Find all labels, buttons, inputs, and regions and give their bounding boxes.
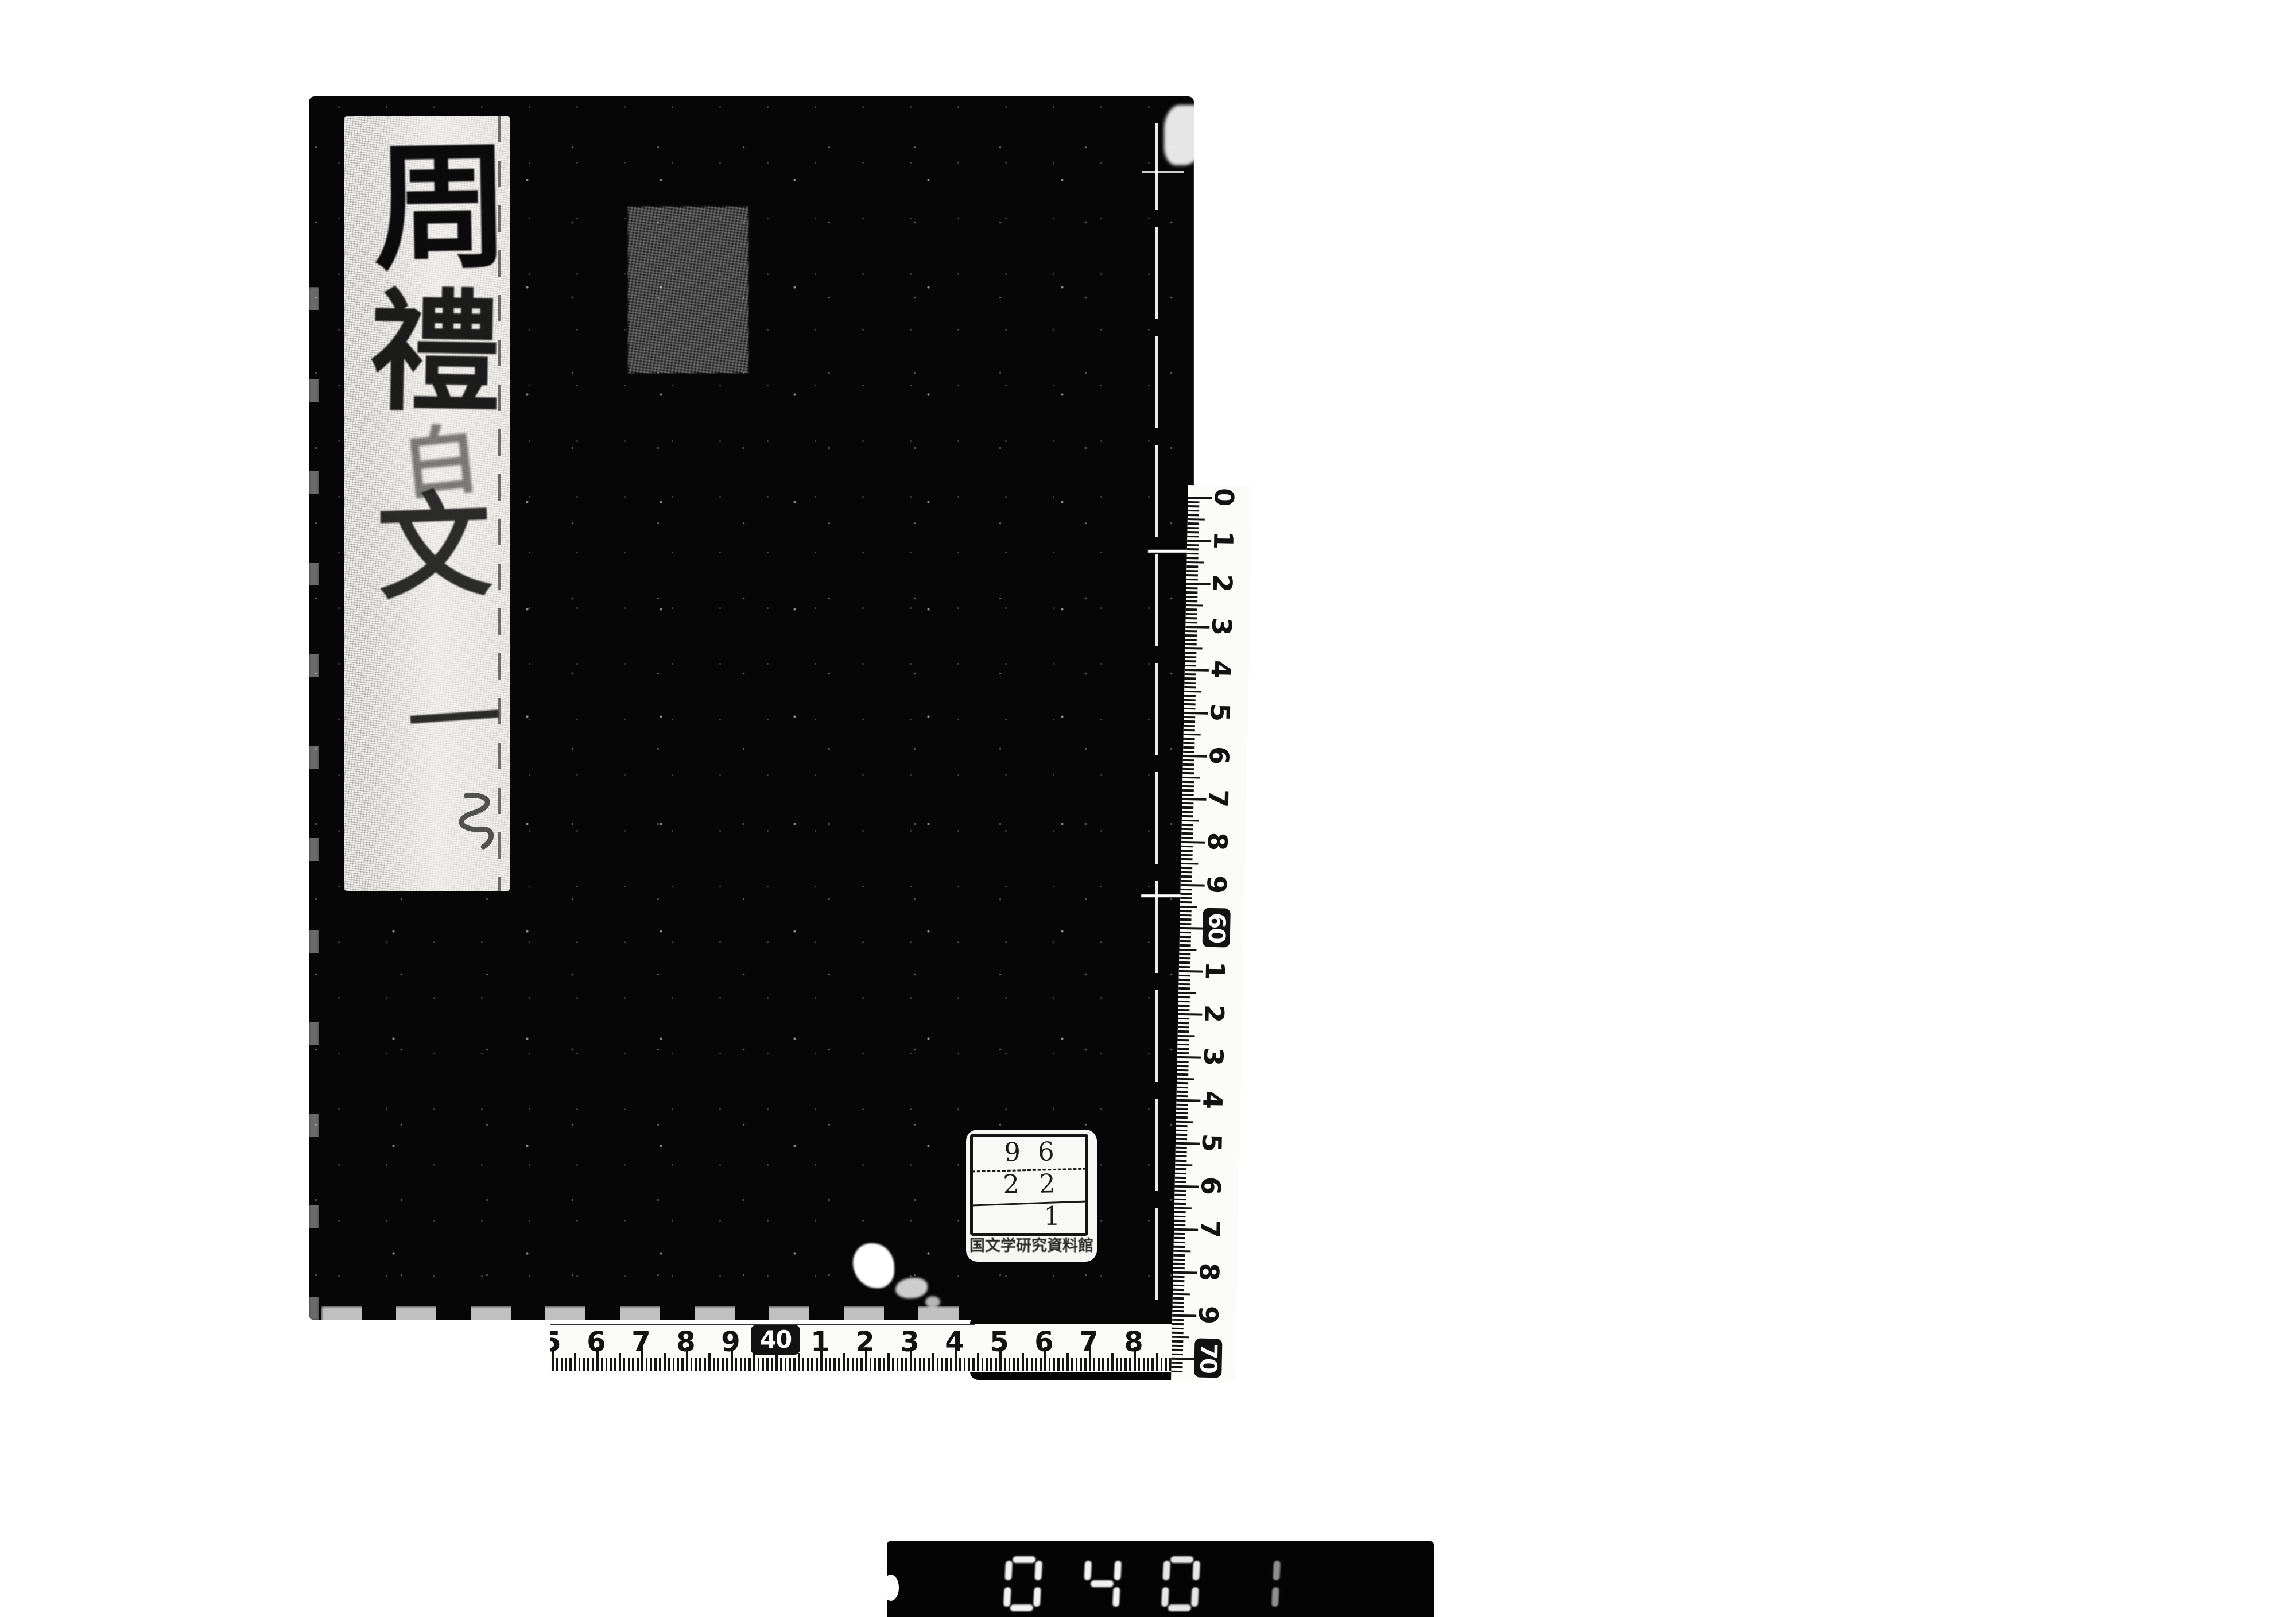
ruler-tick [1172,1306,1184,1308]
ruler-tick [968,1358,970,1371]
ruler-tick [1185,664,1196,666]
ruler-tick [1185,630,1197,632]
ruler-tick [990,1358,992,1371]
ruler-tick [1188,518,1205,520]
ruler-tick [941,1358,944,1371]
ruler-tick [592,1358,594,1371]
ruler-tick [1179,965,1190,968]
ruler-tick [1175,1177,1186,1179]
ruler-tick [587,1358,589,1371]
ruler-tick [1186,578,1198,580]
ruler-tick [1181,879,1192,882]
ruler-number: 8 [1204,827,1231,856]
ruler-number: 7 [1197,1215,1224,1244]
ruler-tick [1040,1358,1042,1371]
ruler-tick [1173,1258,1185,1261]
ruler-tick [1172,1336,1189,1338]
ruler-tick [726,1358,728,1371]
ruler-tick [1186,612,1197,615]
ruler-tick [632,1358,634,1371]
ruler-tick [1173,1254,1185,1257]
ruler-tick [1182,793,1194,796]
stamp-caption: 国文学研究資料館 [966,1233,1097,1255]
ruler-tick [1177,1039,1189,1041]
counter-digit-segment [1162,1561,1170,1580]
counter-digit-segment [1091,1580,1114,1587]
ruler-tick [744,1358,746,1371]
ruler-tick [1184,686,1196,688]
ruler-tick [1184,707,1195,709]
ruler-tick [1177,1048,1189,1050]
title-character-2: 禮 [369,286,502,419]
ruler-tick [1165,1358,1168,1371]
stamp-row-1: 96 [973,1135,1086,1168]
ruler-number: 6 [580,1326,612,1358]
ruler-tick [1173,1275,1184,1278]
ruler-tick [1179,953,1190,955]
ruler-number: 8 [1118,1326,1150,1358]
ruler-tick [883,1358,885,1371]
ruler-tick [1185,634,1197,637]
ruler-tick [1174,1203,1186,1205]
counter-digit-segment [1003,1587,1011,1607]
counter-notch [883,1575,899,1601]
ruler-tick [1180,936,1191,938]
alignment-mark-corner [1142,171,1184,173]
ruler-tick [1187,535,1199,537]
ruler-tick [838,1358,840,1371]
counter-digit-segment [1084,1561,1092,1580]
ruler-tick [1180,897,1192,899]
ruler-tick [1182,789,1194,792]
ruler-tick [1186,608,1197,611]
ruler-tick [1178,1000,1190,1002]
ruler-tick [1185,652,1196,654]
ruler-tick [1181,832,1193,835]
ruler-tick [1161,1358,1163,1371]
ruler-tick [1156,1353,1158,1371]
ruler-tick [1177,1095,1188,1097]
ruler-tick [1180,901,1192,903]
ruler-tick [1173,1250,1190,1252]
ruler-tick [1172,1358,1196,1360]
ruler-tick [1173,1267,1185,1269]
ruler-tick [789,1358,791,1371]
ruler-tick [1174,1189,1186,1192]
ruler-tick [677,1358,679,1371]
ruler-tick [619,1353,621,1371]
ruler-tick [1181,867,1192,869]
library-stamp: 96 22 1 国文学研究資料館 [966,1130,1097,1262]
ruler-tick [1182,781,1194,783]
ruler-tick [1182,806,1193,809]
ruler-tick [1184,720,1195,723]
volume-mark: 一 [403,669,506,772]
cover-wear-corner-topleft [628,207,748,373]
ruler-tick [1182,785,1194,787]
ruler-tick [1120,1358,1123,1371]
ruler-tick [1173,1284,1184,1286]
ruler-tick [1184,703,1196,705]
ruler-tick [1178,1009,1189,1011]
ruler-tick [1176,1134,1187,1136]
ruler-number: 60 [1203,908,1231,948]
ruler-tick [1178,996,1190,998]
ruler-tick [1176,1129,1187,1131]
ruler-tick [713,1358,715,1371]
ruler-tick [1183,738,1194,740]
counter-digit-segment [1004,1561,1013,1580]
ruler-tick [1180,893,1192,895]
counter-digit [1161,1556,1200,1611]
ruler-tick [1172,1340,1183,1343]
ruler-tick [1176,1120,1193,1123]
ruler-tick [1174,1220,1185,1222]
counter-digit-segment [1273,1561,1281,1580]
ruler-tick [664,1353,666,1371]
ruler-tick [1188,505,1199,507]
counter-digit-segment [1034,1561,1042,1580]
ruler-tick [1178,979,1190,981]
ruler-tick [1173,1246,1185,1248]
ruler-number: 40 [751,1325,800,1355]
ruler-tick [1185,677,1196,680]
ruler-tick [1185,621,1197,623]
ruler-number: 5 [1207,698,1234,727]
counter-digit-segment [1114,1561,1122,1580]
ruler-tick [1176,1125,1188,1127]
ruler-tick [1175,1168,1186,1170]
ruler-tick [1186,587,1198,589]
ruler-tick [1177,1052,1189,1054]
stamp-table: 96 22 1 [970,1134,1088,1236]
ruler-tick [887,1353,890,1371]
ruler-tick [1173,1297,1184,1300]
ruler-number: 8 [1196,1258,1223,1287]
ruler-tick [1176,1146,1187,1149]
ruler-number: 1 [1201,956,1228,986]
ruler-tick [668,1358,670,1371]
ruler-tick [1181,862,1198,864]
ruler-tick [1151,1358,1154,1371]
counter-digit-segment [1168,1604,1191,1611]
ruler-tick [982,1358,984,1371]
ruler-tick [1187,557,1199,559]
ruler-tick [1053,1358,1056,1371]
ruler-tick [1187,552,1199,554]
ruler-tick [807,1358,809,1371]
ruler-tick [1084,1358,1087,1371]
ruler-tick [1172,1349,1183,1351]
ruler-tick [1176,1151,1187,1153]
ruler-tick [1182,824,1193,826]
ruler-tick [945,1358,948,1371]
ruler-tick [1175,1172,1186,1174]
ruler-tick [1184,695,1196,697]
ruler-number: 3 [1200,1042,1227,1072]
ruler-tick [1179,974,1190,976]
ruler-tick [1172,1344,1183,1347]
ruler-tick [1181,828,1193,830]
ruler-tick [681,1358,684,1371]
ruler-tick [1179,948,1196,951]
ruler-tick [1184,681,1196,684]
counter-digit-segment [1161,1587,1169,1607]
ruler-tick [1031,1358,1033,1371]
ruler-tick [623,1358,626,1371]
ruler-tick [1185,656,1196,658]
ruler-tick [1180,922,1191,925]
counter-digit-segment [1271,1587,1279,1607]
ruler-tick [847,1358,850,1371]
ruler-tick [1188,509,1199,511]
ruler-tick [695,1358,697,1371]
ruler-tick [740,1358,742,1371]
ruler-tick [1178,1005,1190,1007]
counter-digit-segment [1170,1556,1194,1563]
ruler-tick [1178,1030,1189,1033]
ruler-tick [825,1358,827,1371]
ruler-tick [1182,776,1200,778]
ruler-tick [1172,1327,1184,1329]
ruler-tick [892,1358,894,1371]
ruler-tick [1180,944,1191,947]
ruler-tick [1187,531,1199,533]
ruler-tick [1186,569,1198,572]
ruler-tick [1185,673,1196,675]
ruler-tick [1172,1362,1183,1364]
ruler-tick [1172,1319,1184,1321]
ruler-tick [569,1358,572,1371]
ruler-tick [1177,1082,1188,1084]
ruler-number: 5 [550,1326,568,1358]
ruler-tick [1175,1181,1186,1183]
cover-wear-corner-topright [1164,105,1204,165]
stamp-row-3: 1 [973,1201,1085,1232]
ruler-number: 4 [1207,655,1234,684]
title-scribble [441,786,518,859]
ruler-tick [1076,1358,1078,1371]
ruler-number: 2 [1209,569,1236,598]
ruler-tick [1177,1077,1194,1080]
ruler-number: 1 [1210,526,1237,555]
ruler-tick [1057,1358,1060,1371]
ruler-tick [897,1358,899,1371]
ruler-tick [1182,811,1193,813]
ruler-tick [1180,927,1204,929]
ruler-tick [1174,1232,1185,1235]
ruler-tick [1179,961,1190,964]
ruler-number: 4 [938,1326,971,1358]
title-character-4: 文 [376,488,494,606]
spine-groove-line [1155,123,1158,1300]
ruler-tick [579,1358,581,1371]
ruler-tick [1184,724,1195,727]
ruler-tick [1181,850,1193,852]
ruler-tick [1184,729,1195,731]
ruler-tick [1184,733,1201,735]
ruler-tick [673,1358,675,1371]
ruler-tick [919,1358,921,1371]
ruler-tick [1181,836,1193,839]
ruler-number: 6 [1197,1172,1224,1201]
ruler-tick [1174,1194,1186,1196]
ruler-tick [811,1358,813,1371]
ruler-tick [1178,1026,1189,1028]
ruler-tick [914,1358,917,1371]
ruler-tick [1186,591,1197,594]
ruler-tick [1009,1358,1011,1371]
title-label: 周 禮 白 文 一 [344,116,510,891]
ruler-tick [1186,565,1198,568]
ruler-tick [1176,1108,1188,1110]
ruler-tick [1183,750,1194,753]
ruler-tick [1182,802,1193,804]
ruler-number: 9 [1203,870,1230,899]
ruler-tick [574,1353,576,1371]
ruler-tick [1129,1358,1131,1371]
ruler-number: 2 [1201,999,1228,1029]
ruler-tick [1187,544,1199,546]
ruler-tick [1186,600,1197,602]
ruler-number: 5 [1199,1129,1225,1158]
ruler-tick [766,1358,769,1371]
ruler-tick [691,1358,693,1371]
ruler-tick [1188,514,1199,516]
ruler-tick [1124,1358,1127,1371]
ruler-tick [1172,1332,1184,1334]
ruler-tick [1185,643,1197,645]
ruler-tick [1176,1116,1188,1119]
ruler-tick [793,1358,796,1371]
counter-digit-segment [1192,1561,1200,1580]
ruler-number: 4 [1199,1085,1226,1115]
ruler-tick [1174,1241,1185,1243]
ruler-tick [1181,858,1192,860]
ruler-tick [964,1358,966,1371]
ruler-tick [556,1358,559,1371]
ruler-tick [1184,716,1195,718]
ruler-tick [856,1358,858,1371]
ruler-tick [1143,1358,1145,1371]
ruler-tick [1177,1043,1189,1045]
ruler-tick [1186,604,1203,606]
ruler-tick [1177,1060,1189,1063]
ruler-tick [1066,1353,1069,1371]
ruler-tick [708,1353,711,1371]
ruler-tick [1176,1112,1188,1114]
ruler-tick [1178,1017,1189,1019]
ruler-tick [1013,1358,1015,1371]
ruler-tick [1184,699,1196,701]
ruler-tick [1177,1069,1188,1071]
ruler-tick [972,1358,975,1371]
ruler-tick [1147,1358,1149,1371]
ruler-tick [735,1358,738,1371]
scan-page: 周 禮 白 文 一 567894012345678 01234567896012… [0,0,2296,1617]
counter-digit-segment [1191,1587,1199,1607]
counter-digit-segment [1112,1587,1120,1607]
ruler-tick [699,1358,701,1371]
ruler-number: 3 [1208,612,1235,641]
ruler-tick [1049,1358,1051,1371]
ruler-tick [646,1358,648,1371]
ruler-tick [852,1358,854,1371]
ruler-tick [1174,1215,1186,1217]
ruler-tick [1022,1353,1024,1371]
ruler-number: 2 [849,1326,881,1358]
ruler-tick [1185,638,1197,641]
ruler-number: 6 [1028,1326,1060,1358]
ruler-tick [1098,1358,1100,1371]
counter-digit [1241,1556,1281,1611]
ruler-tick [628,1358,630,1371]
ruler-tick [1062,1358,1064,1371]
ruler-tick [1181,871,1192,873]
ruler-tick [1176,1103,1188,1106]
ruler-tick [928,1358,930,1371]
ruler-number: 9 [1195,1301,1222,1330]
ruler-tick [1111,1353,1114,1371]
ruler-tick [986,1358,988,1371]
ruler-tick [932,1353,934,1371]
ruler-tick [583,1358,585,1371]
ruler-tick [901,1358,903,1371]
ruler-tick [1177,1091,1188,1093]
ruler-tick [843,1353,845,1371]
ruler-tick [1026,1358,1029,1371]
ruler-tick [1180,914,1192,916]
counter-digit-segment [1010,1604,1033,1611]
ruler-tick [1171,1366,1182,1368]
ruler-tick [650,1358,653,1371]
ruler-tick [816,1358,818,1371]
ruler-number: 6 [1205,741,1232,770]
ruler-tick [1174,1224,1185,1226]
ruler-tick [1138,1358,1141,1371]
ruler-tick [1173,1301,1184,1304]
ruler-tick [1178,1022,1189,1024]
ruler-tick [748,1358,751,1371]
ruler-tick [923,1358,925,1371]
ruler-tick [771,1358,773,1371]
ruler-tick [1004,1358,1006,1371]
ruler-number: 0 [1211,485,1238,512]
cover-wear-splotch-dot [925,1296,940,1308]
ruler-tick [1176,1138,1187,1140]
ruler-tick [561,1358,563,1371]
ruler-tick [1173,1263,1185,1265]
ruler-tick [1179,957,1190,959]
ruler-tick [1178,983,1190,985]
ruler-tick [1174,1198,1186,1200]
ruler-tick [606,1358,608,1371]
ruler-tick [565,1358,567,1371]
ruler-tick [1174,1207,1192,1209]
ruler-tick [833,1358,836,1371]
ruler-tick [878,1358,881,1371]
counter-digit-segment [1013,1556,1036,1563]
ruler-tick [1184,690,1201,692]
ruler-tick [1188,526,1199,529]
ruler-number: 7 [625,1326,657,1358]
ruler-tick [1180,931,1191,933]
ruler-tick [860,1358,863,1371]
ruler-tick [1071,1358,1073,1371]
ruler-tick [1185,647,1203,649]
ruler-tick [798,1353,800,1371]
ruler-tick [1186,574,1198,576]
